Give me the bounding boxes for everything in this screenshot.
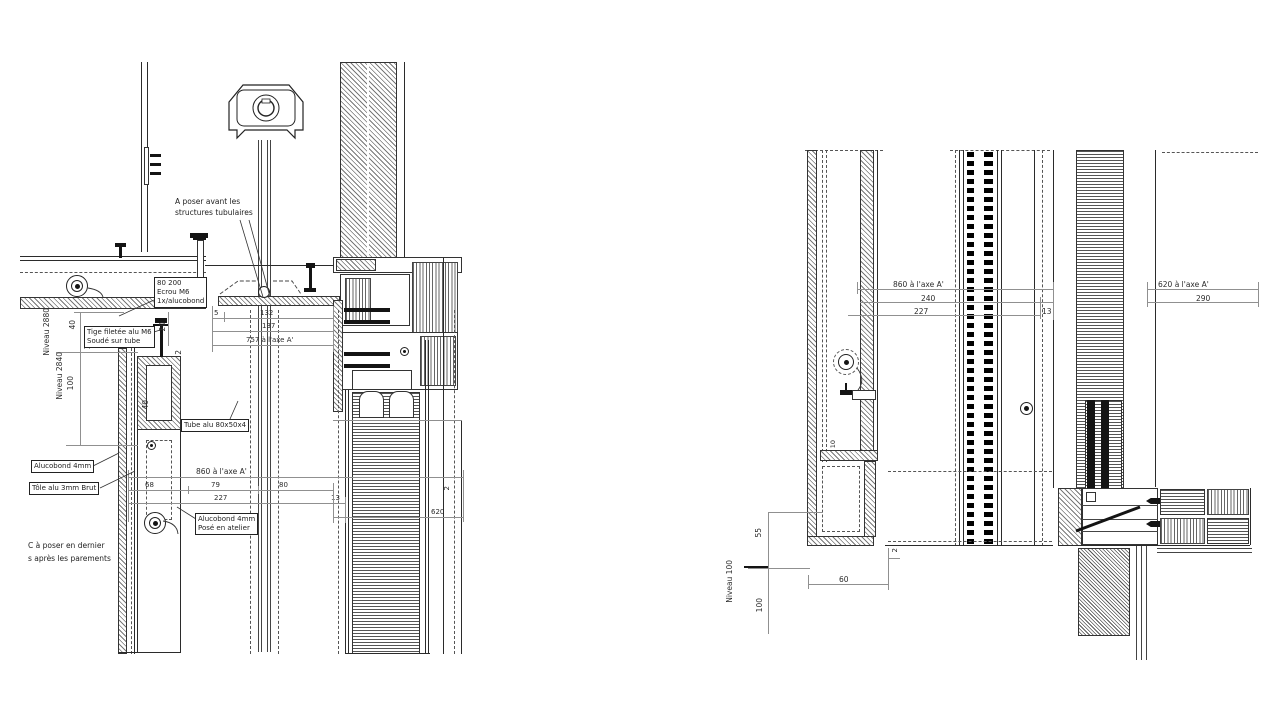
dim-text: 80 [279,482,288,489]
hidden-edge [454,310,455,654]
label-line: 80 200 [157,279,204,288]
head-screw [344,352,390,356]
timber-block [1207,489,1249,515]
fastener-center [844,360,849,365]
dim-line [768,512,769,568]
mullion-edge [963,150,964,546]
note-line: s après les parements [28,555,111,563]
dim-text: 2 [444,486,451,490]
dim-text: 68 [145,482,154,489]
suspension-rod [261,140,262,652]
label-tube: Tube alu 80x50x4 [181,419,249,432]
dim-text: 620 à l'axe A' [1158,281,1209,289]
frame-edge [1250,488,1251,545]
ext-line [888,558,900,559]
hidden-edge [131,348,132,654]
head-striped-infill [345,278,371,322]
dim-line [168,312,169,346]
hidden-edge [338,310,339,654]
alucobond-panel-section [118,348,127,654]
ceiling-fastener-center [75,284,80,289]
ext-line [1040,297,1041,319]
t-bolt-stem [119,247,122,258]
head-screw [344,364,390,368]
hanger-bolt [150,163,161,166]
frame-edge [1146,545,1147,660]
label-line: Ecrou M6 [157,288,204,297]
label-line: Posé en atelier [198,524,255,533]
dim-line [212,345,333,346]
dim-text: 40 [142,400,150,410]
dim-line [768,568,769,634]
frame-edge [428,340,429,654]
dim-line [860,302,1053,303]
dim-line [128,503,346,504]
jamb-hatch-block [1058,488,1082,546]
frame-inner-line [1082,505,1158,506]
tick [258,486,259,494]
ext-line [463,470,464,522]
dim-line [128,490,334,491]
panel-hatch-strip [860,150,874,459]
dim-text: 55 [755,528,763,538]
post-washer [193,238,206,240]
note-line: structures tubulaires [175,209,253,217]
dim-text: 132 [260,310,273,317]
ext-line [224,312,225,322]
timber-block [1207,518,1249,544]
ceiling-top-line [20,256,206,257]
label-alucobond: Alucobond 4mm [31,460,94,473]
insulation-block [1078,548,1130,636]
ext-line [808,575,809,589]
head-screw [344,320,390,324]
dim-line [848,315,1040,316]
ext-line [748,568,810,569]
ext-line [1147,282,1148,307]
dim-text: 10 [830,440,837,448]
level-text: Niveau 2880 [43,308,51,356]
suspension-rod [258,140,259,652]
frame-bottom-line [345,653,430,654]
panel-edge [877,150,878,459]
glazing-bar [1101,400,1109,488]
panel-hatch-strip [807,150,817,546]
hanger-bar-edge [141,62,142,252]
ext-line [345,497,346,523]
dim-line [1147,302,1258,303]
axis-line [1162,152,1258,153]
ext-line [333,483,334,523]
ext-line [888,548,889,590]
hidden-band-edge [888,471,1052,472]
thermal-break-bar [967,152,974,544]
frame-inner-line [1082,531,1158,532]
dim-text: 5 [214,310,218,317]
suspension-rod [267,140,268,652]
level-line [56,352,138,353]
anchor-stem [845,383,847,390]
sill-line [885,545,1053,546]
mullion-edge [1034,150,1035,546]
ceiling-hidden-line [20,272,206,273]
sheet-edge [134,348,135,654]
level-line [66,445,138,446]
timber-block [1160,489,1205,515]
dim-text: 40 [69,320,77,330]
note-tubular-structures: A poser avant les structures tubulaires [175,198,253,216]
panel-return-hatch [820,450,878,461]
dim-text: 860 à l'axe A' [893,281,944,289]
label-line: Soudé sur tube [87,337,152,346]
alu-tube-cavity [146,365,172,421]
wall-fastener-center [153,521,158,526]
dim-line [1147,289,1258,290]
dim-line [80,312,81,445]
leader-line [93,453,119,466]
hanger-bolt [150,172,161,175]
ext-line [128,470,129,522]
bolt-center [1024,406,1029,411]
column-joint-line [367,63,369,264]
dim-line [212,331,333,332]
ext-line [1258,282,1259,307]
dim-text: 100 [67,376,75,390]
rod-pass-circle [258,286,270,298]
dim-text: 227 [214,495,227,502]
hanger-splice-plate [144,147,149,185]
label-tole: Tôle alu 3mm Brut [29,482,99,495]
frame-inner-line [1082,519,1158,520]
hanger-bolt [150,154,161,157]
reference-line [333,420,462,421]
tray-bottom-hatch [218,296,340,306]
sill-line [1058,545,1250,546]
wall-line [1155,150,1156,487]
leader-line [240,220,263,297]
glass-line [443,258,444,654]
mullion-edge [997,150,998,546]
mullion-edge [959,150,960,546]
dim-text: 2 [892,548,899,552]
label-tige: Tige filetée alu M6 Soudé sur tube [84,326,155,348]
dim-text: 13 [1042,308,1052,316]
head-bolt-center [403,350,406,353]
dim-text: 860 à l'axe A' [196,468,247,476]
wall-edge [137,430,138,652]
fastener-hook [88,288,103,297]
dim-line [74,312,124,313]
cad-detail-drawing: 40 10 100 Niveau 2880 Niveau 2840 20 2 4… [0,0,1282,720]
label-line: 1x/alucobond [157,297,204,306]
glass-line [461,420,462,654]
ceiling-top-line [20,260,206,261]
ext-line [857,282,858,294]
dim-text: 137 [262,323,275,330]
ext-line [333,306,334,352]
label-line: Alucobond 4mm [198,515,255,524]
frame-edge [1141,545,1142,660]
sill-line [1157,548,1252,549]
head-hatch-block [336,259,376,271]
hidden-edge [250,310,251,654]
thermal-break-bar [984,152,993,544]
dim-text: 60 [839,576,849,584]
small-bolt-center [150,444,153,447]
note-line: A poser avant les [175,198,253,206]
dim-line [128,477,463,478]
dim-line [212,318,333,319]
leader-line [230,401,238,419]
sill-line [1157,552,1252,553]
hidden-cavity [146,440,172,520]
note-line: C à poser en dernier [28,542,111,550]
dim-text: 620 [431,509,444,516]
dim-text: 2 [175,350,183,355]
wall-edge [180,430,181,652]
ext-line [1053,282,1054,320]
dim-text: 79 [211,482,220,489]
grille-section [352,392,420,654]
dim-text: 20 [159,322,167,332]
hidden-edge [826,150,827,462]
anchor-bracket [852,390,876,400]
frame-edge [348,390,349,654]
gasket-arch [359,391,384,418]
box-bottom-hatch [807,536,874,546]
hidden-edge [1042,150,1043,546]
head-striped-infill [412,262,458,340]
mullion-edge [1001,150,1002,546]
frame-corner-block [1086,492,1096,502]
label-atelier: Alucobond 4mm Posé en atelier [195,513,258,535]
glazing-bar [1087,400,1095,488]
frame-edge [1136,545,1137,660]
dim-line [857,289,1053,290]
dim-line [333,517,463,518]
ext-line [768,512,822,513]
dim-text: 757 à l'axe A' [246,337,293,344]
wall-bottom-line [118,652,181,653]
frame-edge [425,340,426,654]
label-ecrou: 80 200 Ecrou M6 1x/alucobond [154,277,207,308]
suspension-rod [270,140,271,652]
level-tick [744,566,768,568]
anchor-bolt [840,390,852,395]
hidden-edge [822,150,823,462]
level-text: Niveau 2840 [56,352,64,400]
gasket-arch [389,391,414,418]
hidden-cavity [822,466,860,532]
timber-block [1160,518,1205,544]
label-line: Tige filetée alu M6 [87,328,152,337]
box-wall-hatch [864,461,876,537]
level-text: Niveau 100 [726,560,734,603]
hidden-band-edge [888,541,1052,542]
column-face-line [404,62,405,265]
tray-bolt-nut [304,288,316,292]
suspension-clamp-bracket [221,80,311,144]
dim-text: 100 [756,598,764,612]
hidden-edge [955,150,956,546]
note-poser: C à poser en dernier s après les paremen… [28,542,111,562]
dim-line [808,584,888,585]
head-screw [344,308,390,312]
cut-line [950,150,1050,151]
tray-top-line [205,265,341,266]
head-lower-box [352,370,412,390]
tick [188,486,189,494]
